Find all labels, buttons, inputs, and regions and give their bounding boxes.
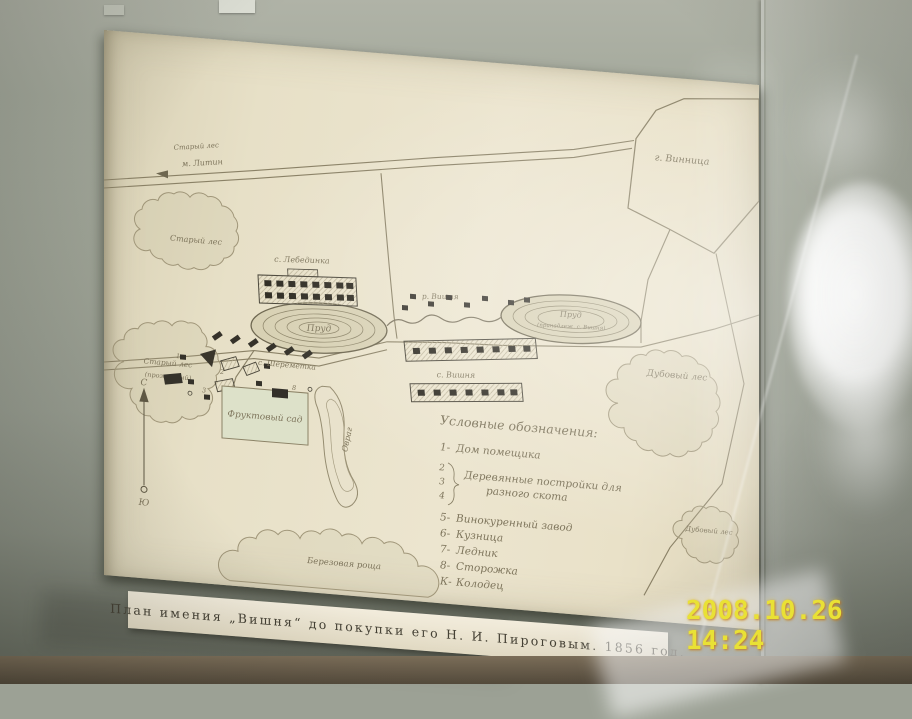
photo-of-framed-map: { "photo": { "timestamp": "2008.10.26 14…: [0, 0, 912, 684]
camera-datestamp: 2008.10.26 14:24: [686, 596, 912, 630]
glass-glare-top: [790, 60, 900, 200]
map-sheet: м. Литин Старый лес г. Винница Старый ле…: [104, 30, 759, 630]
wall-tag: [104, 5, 124, 15]
paper-sheen: [104, 30, 759, 630]
wall-tag: [219, 0, 255, 13]
glass-glare-lower: [812, 350, 912, 520]
